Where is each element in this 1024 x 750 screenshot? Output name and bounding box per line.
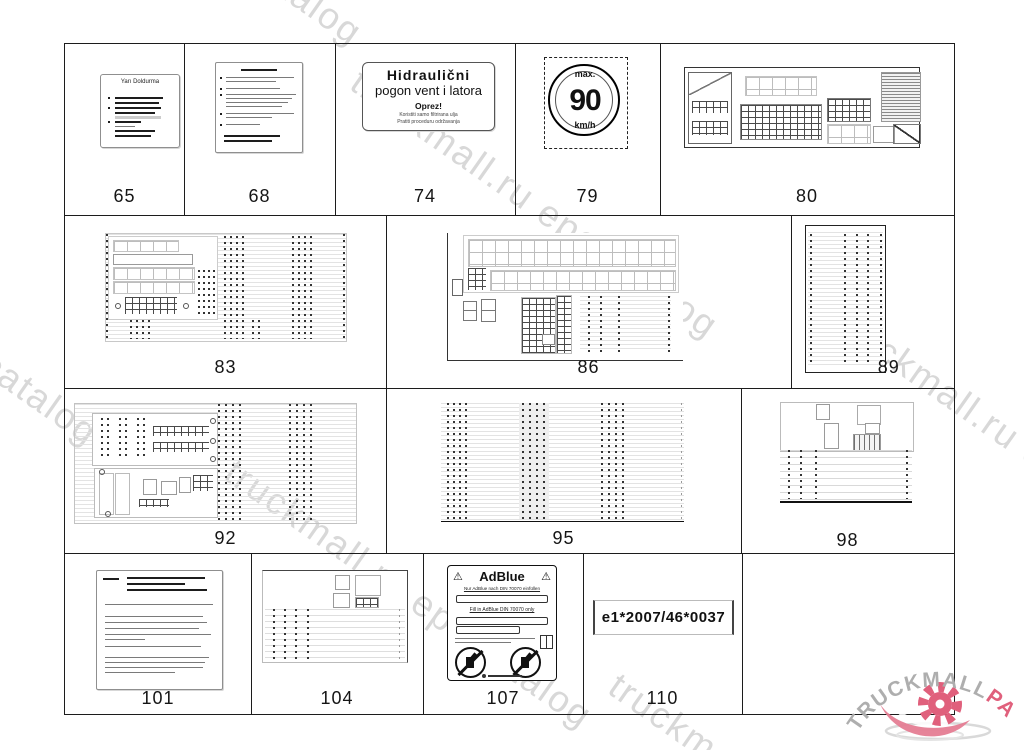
plate-number: 74 [335, 186, 515, 207]
sticker-note: Koristiti samo filtrirana ulja [363, 112, 494, 118]
adblue-label: ⚠ ⚠ AdBlue Nur AdBlue nach DIN 70070 ein… [447, 565, 557, 681]
label-sticker-74: Hidraulični pogon vent i latora Oprez! K… [362, 62, 495, 131]
data-table-104 [262, 570, 408, 663]
data-table-95 [441, 403, 684, 522]
component-diagram-98 [780, 402, 914, 452]
level-bar [456, 626, 520, 634]
plate-number: 92 [65, 528, 386, 549]
watermark-text: truckmall.ru epc catalog [0, 0, 8, 15]
no-diesel-icon [455, 647, 486, 678]
plate-number: 83 [65, 357, 386, 378]
label-sticker-65: Yarı Doldurma [100, 74, 180, 148]
sticker-title: Yarı Doldurma [101, 79, 179, 85]
level-bar [456, 617, 548, 625]
plates-grid: Yarı Doldurma 65 [64, 43, 955, 715]
plate-cell-80[interactable]: 80 [660, 44, 954, 216]
plate-cell-95[interactable]: 95 [386, 388, 742, 554]
no-water-icon [510, 647, 541, 678]
approval-code: e1*2007/46*0037 [602, 609, 725, 626]
plate-cell-68[interactable]: 68 [184, 44, 336, 216]
fuse-panel-diagram-86 [447, 233, 683, 361]
label-sticker-101 [96, 570, 223, 690]
label-sticker-68 [215, 62, 303, 153]
plate-number: 65 [65, 186, 184, 207]
plate-cell-79[interactable]: max. 90 km/h 79 [515, 44, 661, 216]
plate-cell-110[interactable]: e1*2007/46*0037 110 [583, 553, 743, 714]
plate-cell-89[interactable]: 89 [791, 215, 954, 389]
plate-cell-104[interactable]: 104 [251, 553, 424, 714]
adblue-line-en: Fill in AdBlue DIN 70070 only [448, 607, 556, 613]
plate-number: 107 [423, 688, 583, 709]
plate-number: 98 [741, 530, 954, 551]
catalog-sheet: truckmall.ru epc catalog truckmall.ru ep… [0, 0, 1024, 750]
wiring-table-92 [74, 403, 357, 524]
adblue-title: AdBlue [448, 569, 556, 584]
plate-number: 110 [583, 688, 742, 709]
dot-mark [482, 674, 486, 678]
plate-cell-107[interactable]: ⚠ ⚠ AdBlue Nur AdBlue nach DIN 70070 ein… [423, 553, 584, 714]
plate-number: 68 [184, 186, 335, 207]
sign-max-text: max. [545, 69, 625, 79]
sticker-warning: Oprez! [363, 101, 494, 111]
wiring-table-83 [105, 233, 347, 342]
speed-limit-sign: max. 90 km/h [544, 57, 628, 149]
plate-cell-92[interactable]: 92 [65, 388, 387, 554]
sticker-note: Pratiti proceduru održavanja [363, 119, 494, 125]
adblue-line-de: Nur AdBlue nach DIN 70070 einfüllen [448, 586, 556, 591]
fuse-box-diagram [684, 67, 920, 148]
plate-number: 86 [386, 357, 791, 378]
data-table-89 [805, 225, 886, 373]
logo-shadow-ellipse [886, 723, 990, 739]
level-bar [456, 595, 548, 603]
plate-cell-74[interactable]: Hidraulični pogon vent i latora Oprez! K… [335, 44, 516, 216]
plate-cell-83[interactable]: 83 [65, 215, 387, 389]
sticker-heading: Hidraulični [363, 67, 494, 83]
plate-cell-86[interactable]: 86 [386, 215, 792, 389]
manual-book-icon [540, 635, 553, 649]
plate-cell-101[interactable]: 101 [65, 553, 252, 714]
plate-number: 104 [251, 688, 423, 709]
logo-shadow-ellipse [897, 730, 963, 740]
part-code-microtext [488, 675, 522, 677]
plate-cell-empty [742, 553, 954, 714]
plate-number: 101 [65, 688, 251, 709]
sticker-subheading: pogon vent i latora [363, 83, 494, 98]
plate-number: 95 [386, 528, 741, 549]
plate-number: 89 [824, 357, 954, 378]
plate-cell-65[interactable]: Yarı Doldurma 65 [65, 44, 185, 216]
sign-unit: km/h [545, 120, 625, 130]
data-table-98 [780, 450, 912, 503]
plate-number: 80 [660, 186, 954, 207]
plate-cell-98[interactable]: 98 [741, 388, 954, 554]
sign-value: 90 [545, 84, 625, 118]
plate-number: 79 [515, 186, 660, 207]
type-approval-plate: e1*2007/46*0037 [593, 600, 734, 635]
